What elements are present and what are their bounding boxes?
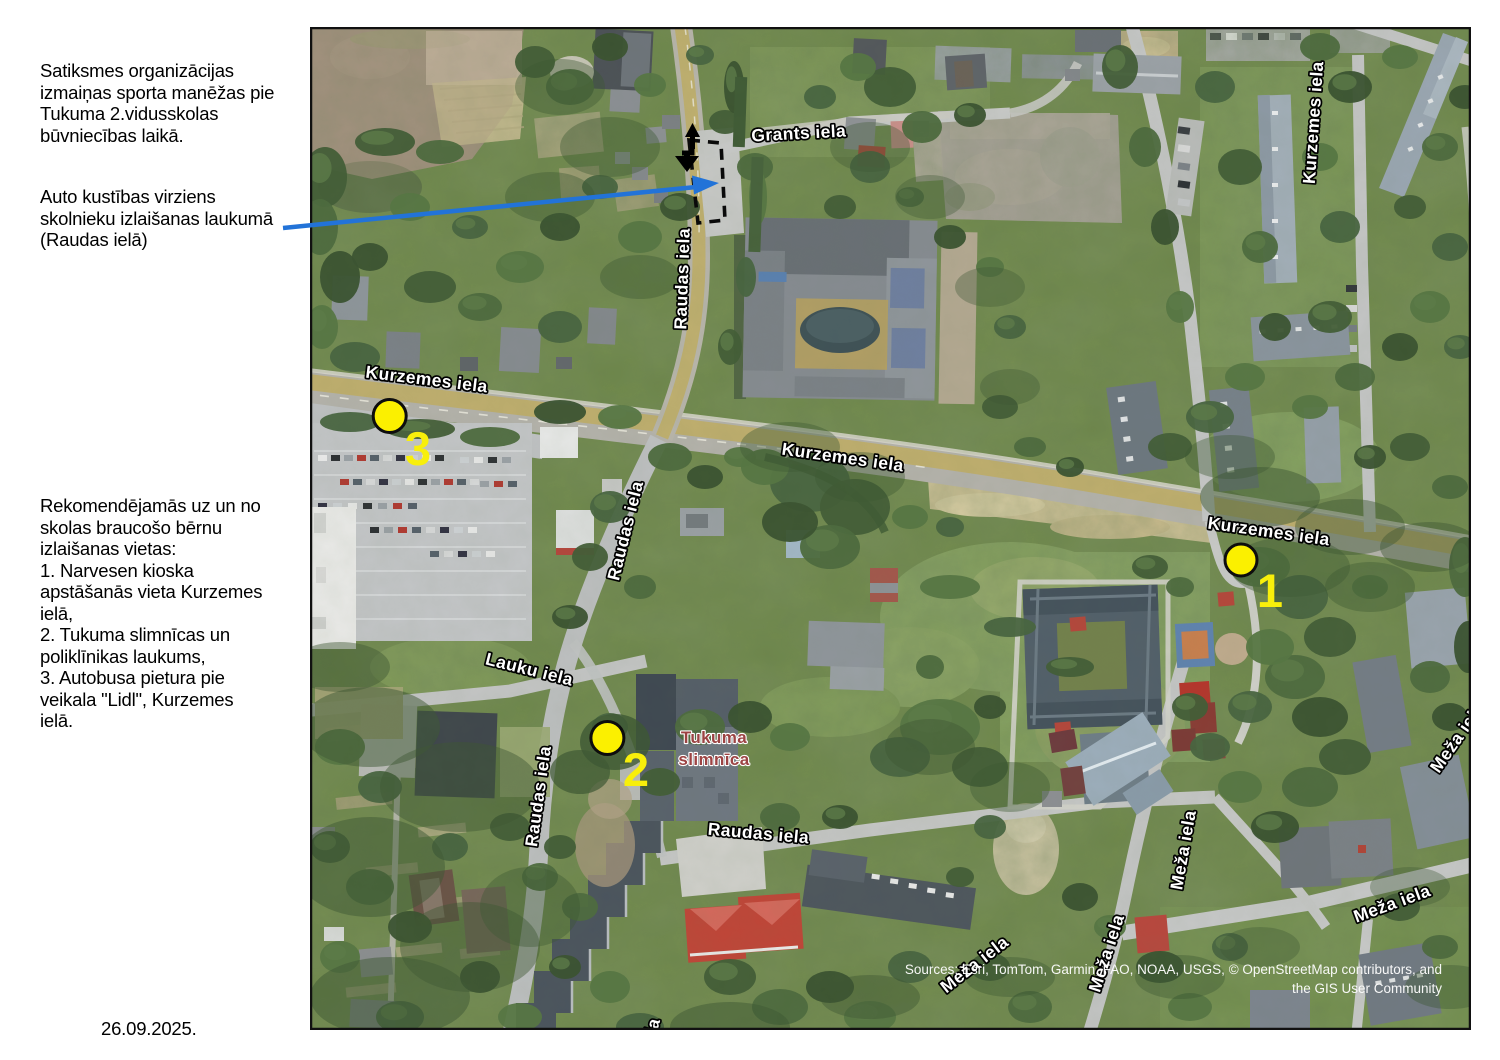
svg-text:1: 1: [1257, 564, 1283, 617]
svg-text:Sources: Esri, TomTom, Garmin,: Sources: Esri, TomTom, Garmin, FAO, NOAA…: [905, 962, 1442, 977]
svg-text:3: 3: [405, 422, 431, 475]
svg-text:slimnīca: slimnīca: [678, 750, 749, 769]
svg-text:the GIS User Community: the GIS User Community: [1292, 981, 1442, 996]
svg-text:2: 2: [623, 743, 649, 796]
svg-text:Tukuma: Tukuma: [681, 728, 747, 747]
